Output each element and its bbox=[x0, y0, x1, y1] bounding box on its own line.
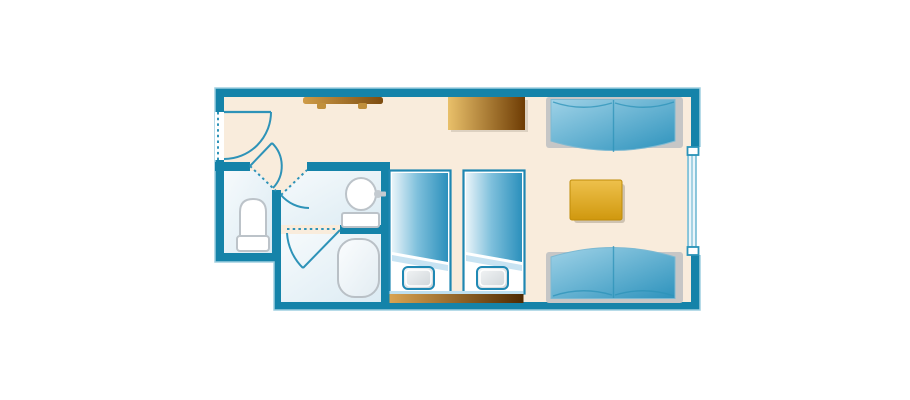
sofa-bottom bbox=[546, 246, 683, 303]
vanity-counter bbox=[342, 213, 379, 227]
coat-rack-foot-right bbox=[358, 103, 367, 109]
table-top bbox=[570, 180, 622, 220]
faucet-handle bbox=[380, 192, 386, 197]
entrance-opening bbox=[215, 112, 224, 160]
table bbox=[570, 180, 625, 223]
toilet-icon bbox=[240, 199, 266, 236]
toilet-base bbox=[237, 236, 269, 251]
window bbox=[687, 147, 701, 255]
toilet-top-wall bbox=[215, 162, 250, 171]
bed-duvet bbox=[466, 173, 522, 262]
bed-2 bbox=[464, 171, 525, 294]
bed-1 bbox=[390, 171, 451, 294]
floorplan-svg bbox=[0, 0, 910, 400]
washroom-top-wall bbox=[307, 162, 381, 171]
sink-icon bbox=[346, 178, 376, 210]
headboard bbox=[390, 294, 524, 303]
bed-duvet bbox=[392, 173, 448, 262]
floorplan-canvas bbox=[0, 0, 910, 400]
sofa-top bbox=[546, 97, 683, 152]
coat-rack-foot-left bbox=[317, 103, 326, 109]
headboard-trim bbox=[390, 291, 524, 294]
bathtub-icon bbox=[338, 239, 379, 297]
dresser bbox=[448, 97, 528, 132]
window-jamb-top bbox=[688, 147, 699, 155]
window-jamb-bottom bbox=[688, 247, 699, 255]
dresser-top bbox=[448, 97, 525, 130]
coat-rack-bar bbox=[303, 97, 383, 104]
vestibule-stub-wall bbox=[272, 190, 281, 253]
